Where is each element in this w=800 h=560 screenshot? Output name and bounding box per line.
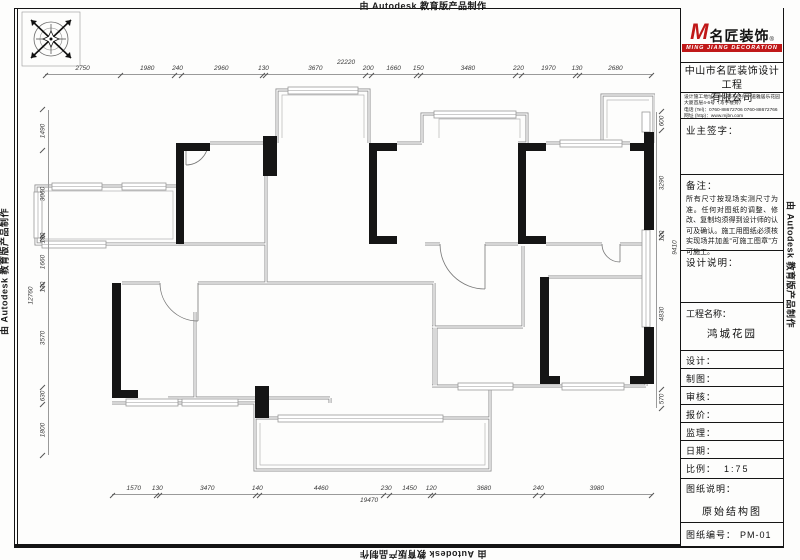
dimension-value: 3470 [200,485,214,492]
dimension-chain-right: 60032901204830570 [656,112,667,408]
dimension-segment: 1450 [389,486,429,495]
dimension-value: 4460 [314,485,328,492]
remarks-label: 备注： [686,181,718,192]
dimension-segment: 1970 [521,66,575,75]
dimension-segment: 3670 [265,66,365,75]
titleblock-row-quotation: 报价： [681,404,783,422]
dim-total-right: 9410 [672,240,679,254]
remarks-text: 所有尺寸按现场实测尺寸为准。任何对图纸的调整、修改、复制均须得到设计师的认可及确… [686,195,778,258]
dimension-value: 3480 [461,65,475,72]
dim-total-left: 12760 [28,286,35,304]
dimension-value: 1800 [40,423,47,437]
dimension-chain-top: 2750198024029601303670200166015034802201… [45,66,652,75]
dimension-segment: 2750 [45,66,120,75]
company-logo: M 名匠装饰 ® MING JIANG DECORATION [681,8,783,62]
dimension-value: 4830 [659,307,666,321]
sheet-note-label: 图纸说明： [686,482,778,495]
autodesk-watermark-bottom: 由 Autodesk 教育版产品制作 [338,548,508,560]
dimension-value: 1970 [541,65,555,72]
dimension-value: 1570 [127,485,141,492]
owner-signature-section: 业主签字： [681,118,783,174]
reviewer-label: 审核： [686,392,716,402]
titleblock: M 名匠装饰 ® MING JIANG DECORATION 中山市名匠装饰设计… [681,8,783,546]
dimension-value: 1660 [386,65,400,72]
dimension-value: 1660 [40,255,47,269]
dimension-value: 3680 [477,485,491,492]
dimension-segment: 2960 [181,66,262,75]
supervision-label: 监理： [686,428,716,438]
drafter-label: 制图： [686,374,716,384]
dimension-segment: 1660 [371,66,416,75]
titleblock-row-drafter: 制图： [681,368,783,386]
logo-brand-text: 名匠装饰 [709,29,769,43]
dimension-segment: 2680 [579,66,652,75]
dimension-segment: 3480 [420,66,515,75]
quotation-label: 报价： [686,410,716,420]
dimension-value: 3290 [659,175,666,189]
dimension-segment: 240 [535,486,542,495]
dimension-value: 600 [659,116,666,127]
dimension-value: 2750 [75,65,89,72]
dimension-value: 1490 [40,123,47,137]
dimension-segment: 4830 [656,238,667,390]
dimension-chain-bottom: 157013034701404460230145012036802403980 [112,486,652,495]
dimension-value: 3670 [308,65,322,72]
dimension-segment: 1570 [112,486,156,495]
project-name-label: 工程名称： [686,307,778,320]
frame-border-left [14,8,15,546]
dimension-chain-left: 14903060130166013035706301800 [38,110,49,455]
sheet-note-value: 原始结构图 [686,503,778,518]
company-name-line1: 中山市名匠装饰设计工程 [681,65,783,92]
dimension-value: 630 [40,391,47,402]
dimension-segment: 1800 [38,405,49,455]
cad-drawing-sheet: 由 Autodesk 教育版产品制作 由 Autodesk 教育版产品制作 由 … [0,0,800,560]
dimension-segment: 3570 [38,289,49,388]
sheet-number-value: PM-01 [740,530,772,540]
dimension-segment: 3290 [656,131,667,234]
logo-subtitle-band: MING JIANG DECORATION [682,44,782,52]
titleblock-row-supervision: 监理： [681,422,783,440]
scale-label: 比例： [686,462,716,475]
logo-m-icon: M [690,21,708,43]
dimension-value: 2960 [214,65,228,72]
date-label: 日期： [686,446,716,456]
dimension-segment: 3980 [542,486,652,495]
dimension-segment: 3680 [433,486,535,495]
dimension-segment: 3470 [159,486,255,495]
dimension-value: 3570 [40,331,47,345]
sheet-number-label: 图纸编号： [686,528,736,541]
dimension-segment: 1660 [38,239,49,285]
floorplan-svg [30,80,655,485]
titleblock-row-date: 日期： [681,440,783,458]
scale-section: 比例： 1:75 [681,458,783,478]
company-name: 中山市名匠装饰设计工程 有限公司 [681,62,783,92]
dimension-segment: 4460 [259,486,383,495]
dim-total-top: 22220 [337,59,355,66]
dim-total-bottom: 19470 [360,497,378,504]
titleblock-row-reviewer: 审核： [681,386,783,404]
dimension-value: 2680 [608,65,622,72]
titleblock-row-designer: 设计： [681,350,783,368]
sheet-note-section: 图纸说明： 原始结构图 [681,478,783,522]
designer-label: 设计： [686,356,716,366]
remarks-section: 备注： 所有尺寸按现场实测尺寸为准。任何对图纸的调整、修改、复制均须得到设计师的… [681,174,783,250]
owner-signature-label: 业主签字： [686,126,739,137]
dimension-segment: 3060 [38,151,49,236]
compass-rose-icon [21,11,81,67]
autodesk-watermark-top: 由 Autodesk 教育版产品制作 [338,0,508,12]
dimension-segment: 1980 [120,66,174,75]
dimension-segment: 570 [656,390,667,408]
autodesk-watermark-left: 由 Autodesk 教育版产品制作 [0,187,11,357]
dimension-value: 570 [659,394,666,405]
scale-value: 1:75 [724,464,750,474]
dimension-value: 1450 [402,485,416,492]
company-contact: 设计施工地址：中山市东区兴中道雅居乐花园 大厦首层4-6号（写字楼旁） 电话 (… [681,92,783,118]
project-name-section: 工程名称： 鸿城花园 [681,302,783,350]
design-notes-label: 设计说明： [686,258,739,269]
autodesk-watermark-right: 由 Autodesk 教育版产品制作 [785,180,798,350]
sheet-number-section: 图纸编号： PM-01 [681,522,783,546]
dimension-value: 3060 [40,186,47,200]
frame-border-left-inner [17,8,18,546]
logo-registered-mark: ® [769,37,773,43]
dimension-segment: 1490 [38,110,49,151]
dimension-value: 3980 [590,485,604,492]
design-notes-section: 设计说明： [681,250,783,302]
project-name-value: 鸿城花园 [686,326,778,341]
dimension-value: 1980 [140,65,154,72]
